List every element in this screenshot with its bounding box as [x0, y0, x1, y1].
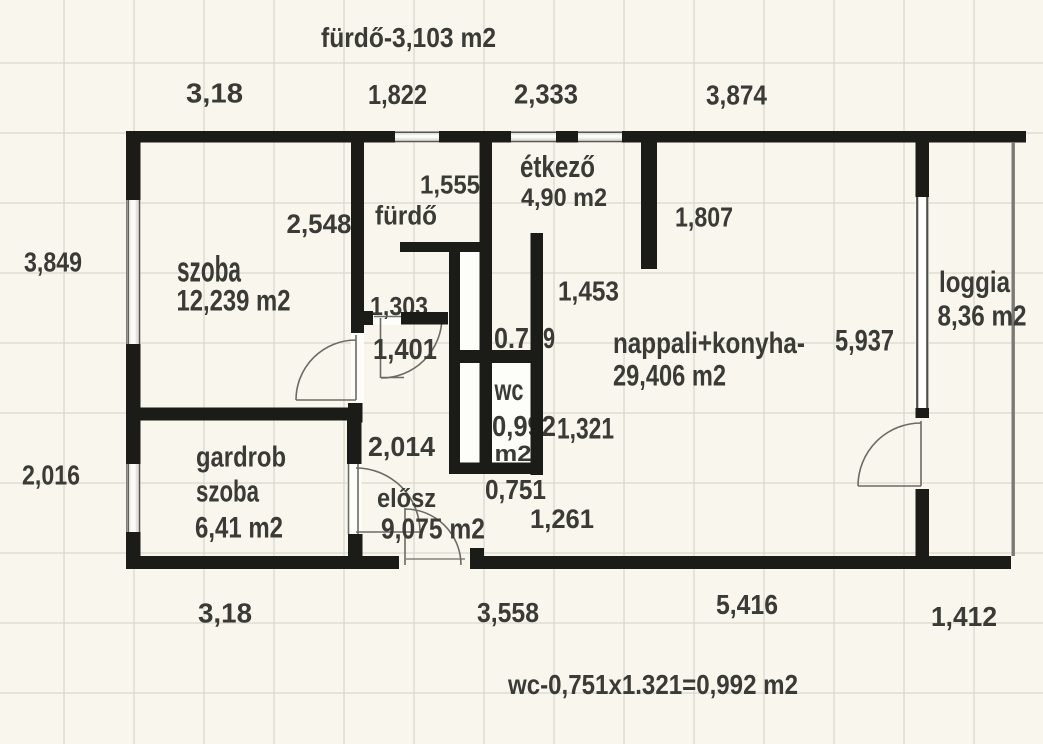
svg-text:1,822: 1,822 — [368, 79, 427, 110]
svg-text:fürdő-3,103 m2: fürdő-3,103 m2 — [321, 22, 496, 53]
svg-text:m2: m2 — [495, 441, 532, 466]
svg-text:3,18: 3,18 — [186, 78, 243, 109]
svg-text:étkező: étkező — [520, 149, 595, 184]
svg-text:loggia: loggia — [939, 266, 1010, 299]
svg-text:szoba: szoba — [196, 474, 260, 509]
svg-text:1,807: 1,807 — [675, 202, 733, 233]
svg-text:1,261: 1,261 — [530, 504, 594, 534]
svg-text:3,849: 3,849 — [24, 247, 82, 278]
svg-text:fürdő: fürdő — [375, 201, 437, 231]
svg-text:5,937: 5,937 — [835, 325, 894, 358]
svg-text:wc-0,751x1.321=0,992 m2: wc-0,751x1.321=0,992 m2 — [507, 669, 798, 700]
svg-text:1,321: 1,321 — [557, 413, 614, 446]
svg-text:2,333: 2,333 — [514, 79, 578, 110]
svg-text:0.7: 0.7 — [494, 323, 529, 355]
svg-text:4,90 m2: 4,90 m2 — [521, 184, 607, 212]
svg-text:2,016: 2,016 — [22, 460, 80, 491]
svg-text:1,453: 1,453 — [558, 276, 619, 307]
svg-text:szoba: szoba — [177, 249, 242, 290]
svg-text:1,555: 1,555 — [420, 170, 480, 200]
svg-text:0,992: 0,992 — [492, 411, 556, 443]
svg-text:elősz: elősz — [377, 485, 436, 513]
svg-text:wc: wc — [494, 374, 524, 407]
svg-text:8,36 m2: 8,36 m2 — [938, 301, 1027, 333]
svg-text:gardrob: gardrob — [196, 442, 286, 474]
svg-text:9,075 m2: 9,075 m2 — [381, 514, 485, 546]
svg-text:2,548: 2,548 — [287, 209, 352, 239]
svg-text:1,412: 1,412 — [931, 601, 997, 632]
svg-text:5,416: 5,416 — [716, 589, 778, 620]
svg-text:3,558: 3,558 — [477, 597, 539, 628]
svg-text:6,41 m2: 6,41 m2 — [195, 512, 283, 545]
svg-text:0,751: 0,751 — [485, 474, 546, 505]
svg-text:3,874: 3,874 — [706, 80, 767, 111]
svg-text:29,406 m2: 29,406 m2 — [613, 360, 726, 393]
svg-text:1,401: 1,401 — [373, 334, 437, 366]
svg-text:nappali+konyha-: nappali+konyha- — [613, 327, 805, 360]
svg-text:3,18: 3,18 — [198, 598, 252, 629]
svg-text:2,014: 2,014 — [368, 431, 436, 462]
svg-text:9: 9 — [543, 323, 555, 355]
svg-text:12,239 m2: 12,239 m2 — [177, 285, 291, 318]
